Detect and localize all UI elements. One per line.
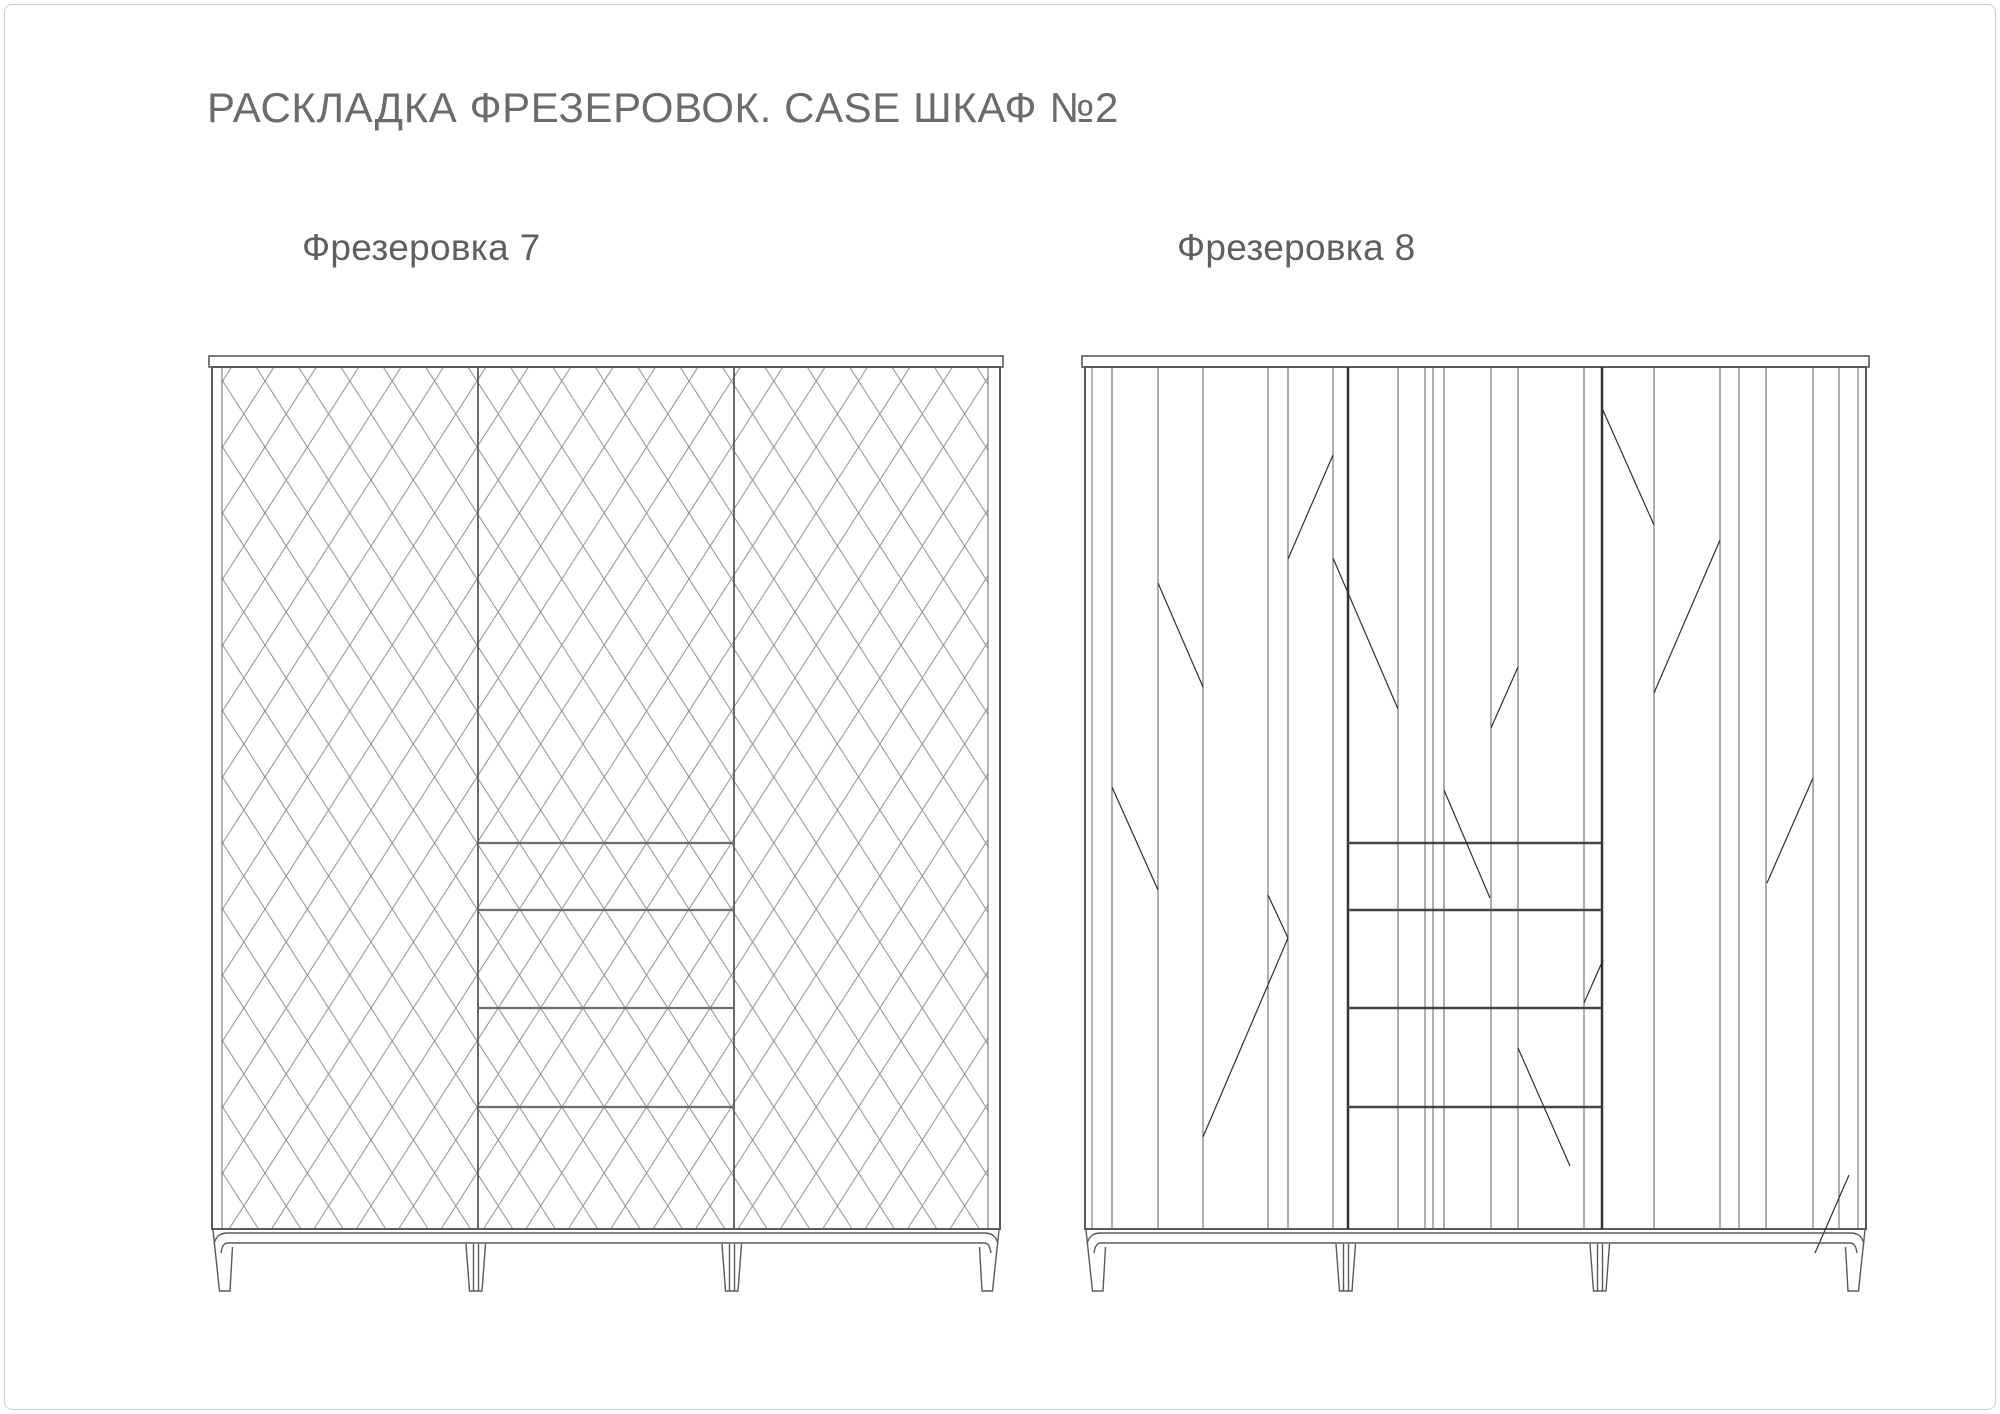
cabinet-7-drawing: [209, 356, 1003, 1291]
cabinet-7-legs: [213, 1230, 999, 1291]
cabinet-8-door-dividers: [1348, 367, 1602, 1229]
cabinet-8-body-outline: [1085, 367, 1866, 1229]
cabinet-8-side-stiles: [1092, 367, 1858, 1229]
cabinet-8-base-rail: [1087, 1233, 1864, 1253]
cabinet-8-drawer-lines: [1348, 843, 1602, 1107]
cabinet-7-base-rail: [214, 1233, 998, 1253]
cabinet-7-lattice-pattern: [222, 368, 988, 1229]
cabinet-drawings: [0, 0, 2000, 1414]
cabinet-8-diagonal-accents: [1112, 408, 1849, 1253]
cabinet-8-legs: [1086, 1230, 1865, 1291]
cabinet-8-drawing: [1082, 356, 1869, 1291]
cabinet-8-plank-lines: [1112, 367, 1839, 1229]
page: РАСКЛАДКА ФРЕЗЕРОВОК. CASE ШКАФ №2 Фрезе…: [0, 0, 2000, 1414]
cabinet-8-top-panel: [1082, 356, 1869, 367]
cabinet-7-top-panel: [209, 356, 1003, 367]
